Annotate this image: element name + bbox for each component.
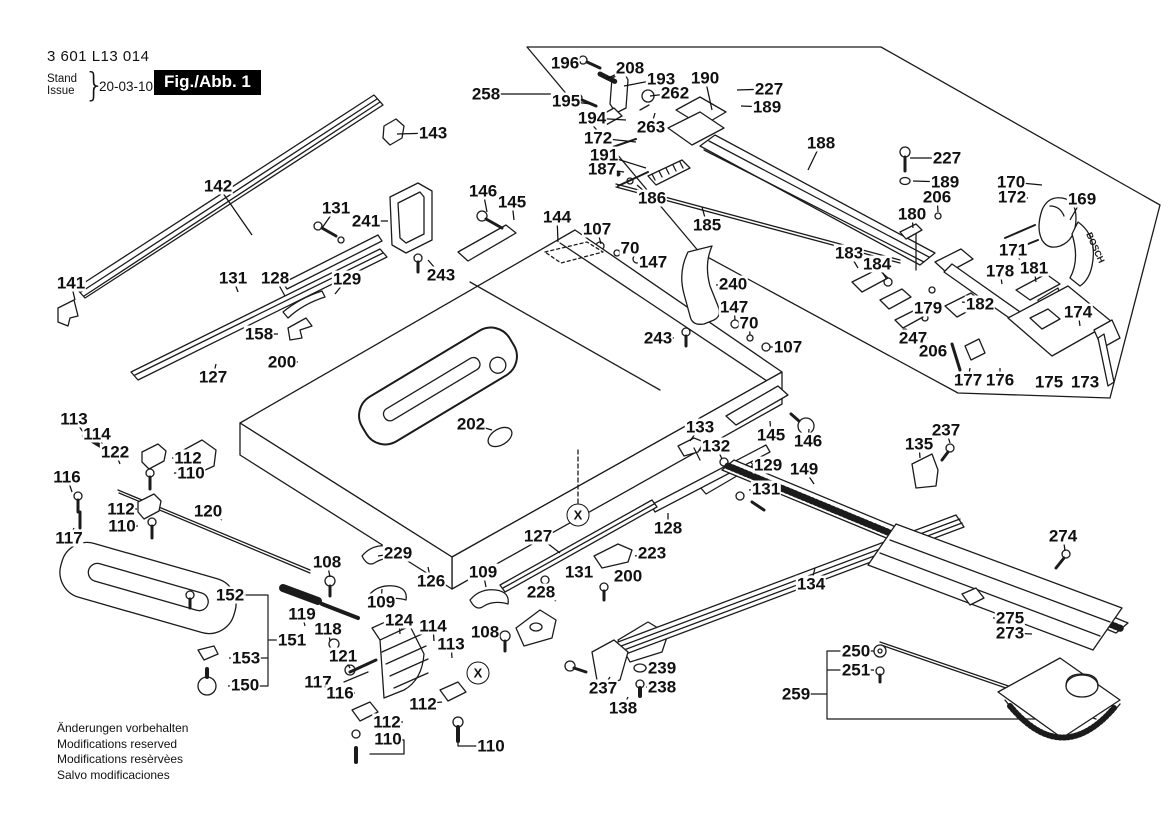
part-label-142: 142 xyxy=(203,178,233,195)
part-label-171: 171 xyxy=(998,242,1028,259)
part-label-187: 187 xyxy=(587,161,617,178)
part-label-208: 208 xyxy=(615,60,645,77)
part-label-239: 239 xyxy=(647,660,677,677)
part-label-184: 184 xyxy=(862,256,892,273)
part-label-172: 172 xyxy=(583,130,613,147)
part-label-114: 114 xyxy=(82,426,111,443)
part-label-150: 150 xyxy=(230,677,260,694)
part-label-206: 206 xyxy=(922,189,952,206)
part-label-131: 131 xyxy=(751,481,781,498)
part-label-228: 228 xyxy=(526,584,556,601)
part-label-250: 250 xyxy=(841,643,871,660)
part-label-146: 146 xyxy=(793,433,823,450)
part-label-107: 107 xyxy=(773,339,803,356)
part-label-183: 183 xyxy=(834,245,864,262)
part-label-251: 251 xyxy=(841,662,871,679)
document-number: 3 601 L13 014 xyxy=(47,48,287,65)
part-label-112: 112 xyxy=(372,714,401,731)
part-label-227: 227 xyxy=(754,81,784,98)
part-label-127: 127 xyxy=(523,528,553,545)
part-label-176: 176 xyxy=(985,372,1015,389)
part-label-190: 190 xyxy=(690,70,720,87)
part-label-258: 258 xyxy=(471,86,501,103)
part-label-108: 108 xyxy=(470,624,500,641)
part-label-241: 241 xyxy=(351,213,381,230)
part-label-238: 238 xyxy=(647,679,677,696)
part-label-202: 202 xyxy=(456,416,486,433)
issue-label: Issue xyxy=(47,85,75,97)
parts-diagram-page: BOSCH 1431421312411461451441077014718624… xyxy=(0,0,1169,826)
part-label-179: 179 xyxy=(913,300,943,317)
part-label-182: 182 xyxy=(965,296,995,313)
notice-line-en: Modifications reserved xyxy=(57,737,188,753)
part-label-112: 112 xyxy=(408,696,437,713)
part-label-151: 151 xyxy=(277,632,307,649)
section-marker-x: X xyxy=(467,662,490,685)
part-label-110: 110 xyxy=(107,518,136,535)
part-label-200: 200 xyxy=(613,568,643,585)
part-label-126: 126 xyxy=(416,573,446,590)
part-label-110: 110 xyxy=(373,731,402,748)
part-label-143: 143 xyxy=(418,125,448,142)
part-label-109: 109 xyxy=(366,594,396,611)
part-label-138: 138 xyxy=(608,700,638,717)
part-label-117: 117 xyxy=(54,530,83,547)
part-label-243: 243 xyxy=(426,267,456,284)
notice-line-de: Änderungen vorbehalten xyxy=(57,721,188,737)
part-label-169: 169 xyxy=(1067,191,1097,208)
part-label-133: 133 xyxy=(685,419,715,436)
section-marker-x: X xyxy=(567,504,590,527)
part-label-185: 185 xyxy=(692,217,722,234)
part-label-110: 110 xyxy=(176,465,205,482)
part-label-122: 122 xyxy=(100,444,130,461)
part-label-131: 131 xyxy=(218,270,248,287)
part-label-237: 237 xyxy=(931,422,961,439)
part-labels: 1431421312411461451441077014718624325819… xyxy=(0,0,1169,826)
part-label-223: 223 xyxy=(637,545,667,562)
part-label-128: 128 xyxy=(653,520,683,537)
part-label-107: 107 xyxy=(582,221,612,238)
part-label-186: 186 xyxy=(637,190,667,207)
part-label-124: 124 xyxy=(384,612,414,629)
part-label-194: 194 xyxy=(577,110,607,127)
part-label-135: 135 xyxy=(904,436,934,453)
part-label-240: 240 xyxy=(718,276,748,293)
notice-line-es: Salvo modificaciones xyxy=(57,768,188,784)
part-label-181: 181 xyxy=(1019,260,1049,277)
part-label-174: 174 xyxy=(1063,304,1093,321)
part-label-120: 120 xyxy=(193,503,223,520)
part-label-180: 180 xyxy=(897,206,927,223)
part-label-188: 188 xyxy=(806,135,836,152)
part-label-127: 127 xyxy=(198,369,228,386)
part-label-273: 273 xyxy=(995,625,1025,642)
figure-badge: Fig./Abb. 1 xyxy=(154,70,261,95)
notice-line-fr: Modifications resèrvèes xyxy=(57,752,188,768)
part-label-196: 196 xyxy=(550,55,580,72)
part-label-178: 178 xyxy=(985,263,1015,280)
part-label-158: 158 xyxy=(244,326,274,343)
modifications-notice: Änderungen vorbehalten Modifications res… xyxy=(57,721,188,783)
part-label-145: 145 xyxy=(497,194,527,211)
part-label-116: 116 xyxy=(325,685,354,702)
part-label-114: 114 xyxy=(418,618,447,635)
part-label-172: 172 xyxy=(997,189,1027,206)
part-label-121: 121 xyxy=(328,648,358,665)
part-label-175: 175 xyxy=(1034,374,1064,391)
part-label-262: 262 xyxy=(660,85,690,102)
part-label-131: 131 xyxy=(321,200,351,217)
stand-label: Stand xyxy=(47,73,77,85)
part-label-189: 189 xyxy=(752,99,782,116)
part-label-259: 259 xyxy=(781,686,811,703)
part-label-195: 195 xyxy=(551,93,581,110)
part-label-113: 113 xyxy=(436,636,465,653)
part-label-70: 70 xyxy=(739,315,760,332)
part-label-146: 146 xyxy=(468,183,498,200)
part-label-131: 131 xyxy=(564,564,594,581)
part-label-108: 108 xyxy=(312,554,342,571)
part-label-237: 237 xyxy=(588,680,618,697)
part-label-243: 243 xyxy=(643,330,673,347)
part-label-206: 206 xyxy=(918,343,948,360)
part-label-112: 112 xyxy=(106,501,135,518)
part-label-147: 147 xyxy=(638,254,668,271)
part-label-129: 129 xyxy=(753,457,783,474)
part-label-263: 263 xyxy=(636,119,666,136)
part-label-134: 134 xyxy=(796,576,826,593)
part-label-177: 177 xyxy=(953,372,983,389)
part-label-173: 173 xyxy=(1070,374,1100,391)
part-label-141: 141 xyxy=(56,275,86,292)
part-label-109: 109 xyxy=(468,564,498,581)
part-label-129: 129 xyxy=(332,271,362,288)
part-label-200: 200 xyxy=(267,354,297,371)
part-label-128: 128 xyxy=(260,270,290,287)
part-label-274: 274 xyxy=(1048,528,1078,545)
part-label-144: 144 xyxy=(542,209,572,226)
part-label-229: 229 xyxy=(383,545,413,562)
part-label-110: 110 xyxy=(476,738,505,755)
part-label-132: 132 xyxy=(701,438,731,455)
part-label-116: 116 xyxy=(52,469,81,486)
part-label-149: 149 xyxy=(789,461,819,478)
part-label-118: 118 xyxy=(313,621,342,638)
issue-date: 20-03-10 xyxy=(99,79,153,94)
part-label-153: 153 xyxy=(231,650,261,667)
part-label-227: 227 xyxy=(932,150,962,167)
part-label-152: 152 xyxy=(215,587,245,604)
part-label-145: 145 xyxy=(756,427,786,444)
